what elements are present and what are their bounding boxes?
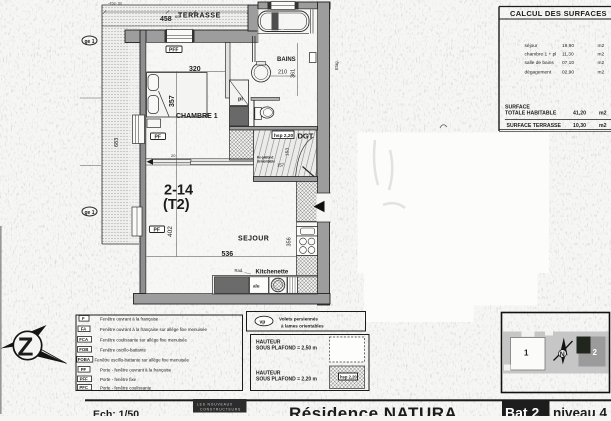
svg-text:FOBA: FOBA <box>78 357 90 362</box>
svg-text:Fenêtre oscillo-battante: Fenêtre oscillo-battante <box>100 348 146 353</box>
svg-text:ge 1: ge 1 <box>85 210 95 216</box>
svg-text:210: 210 <box>278 70 287 76</box>
svg-text:niveau 4: niveau 4 <box>553 406 608 417</box>
svg-text:m2: m2 <box>599 123 607 129</box>
svg-text:41,20: 41,20 <box>573 111 586 117</box>
svg-text:m2: m2 <box>598 70 605 76</box>
svg-text:démontable: démontable <box>257 160 275 164</box>
svg-text:356: 356 <box>287 237 293 246</box>
svg-text:Rad.: Rad. <box>235 268 244 273</box>
svg-text:FA: FA <box>81 327 87 332</box>
svg-text:19,90: 19,90 <box>562 43 574 49</box>
svg-text:Fenêtre oscillo-battante sur a: Fenêtre oscillo-battante sur allège fixe… <box>95 358 190 363</box>
svg-text:02,90: 02,90 <box>562 70 574 76</box>
svg-text:(T2): (T2) <box>163 197 190 213</box>
svg-text:2: 2 <box>593 348 598 357</box>
svg-text:07,10: 07,10 <box>562 60 574 66</box>
svg-text:PF: PF <box>155 134 161 140</box>
svg-text:320: 320 <box>189 66 201 73</box>
svg-text:PFF: PFF <box>169 47 178 53</box>
svg-text:F: F <box>82 316 85 321</box>
svg-text:hsp 2,20: hsp 2,20 <box>340 375 357 380</box>
svg-text:séjour: séjour <box>525 43 538 49</box>
svg-text:683: 683 <box>114 138 120 147</box>
svg-text:CHAMBRE 1: CHAMBRE 1 <box>176 113 218 120</box>
svg-text:PFF: PFF <box>80 377 88 382</box>
svg-text:PF: PF <box>81 367 87 372</box>
svg-text:PFC: PFC <box>79 385 88 390</box>
svg-text:PF: PF <box>154 227 160 233</box>
svg-text:Porte - fenêtre fixe: Porte - fenêtre fixe <box>100 377 137 382</box>
svg-text:458: 458 <box>160 16 172 23</box>
svg-text:TOTALE HABITABLE: TOTALE HABITABLE <box>505 111 557 117</box>
svg-text:Kitchenette: Kitchenette <box>256 270 289 276</box>
svg-text:alu: alu <box>253 284 260 289</box>
svg-text:Porte - fenêtre ouvrant à la f: Porte - fenêtre ouvrant à la française <box>100 368 172 373</box>
svg-text:Bat 2: Bat 2 <box>505 405 539 417</box>
svg-text:Porte - fenêtre coulissante: Porte - fenêtre coulissante <box>100 386 152 391</box>
svg-text:157: 157 <box>277 163 285 168</box>
svg-text:LES NOUVEAUX: LES NOUVEAUX <box>197 403 233 407</box>
svg-text:11,30: 11,30 <box>562 52 574 58</box>
svg-text:1: 1 <box>524 349 529 358</box>
svg-text:DGT: DGT <box>298 132 314 141</box>
svg-text:170x70: 170x70 <box>280 17 285 31</box>
svg-text:-458- 60: -458- 60 <box>108 2 122 6</box>
svg-text:SEJOUR: SEJOUR <box>238 236 269 243</box>
svg-text:CALCUL DES SURFACES: CALCUL DES SURFACES <box>510 9 607 18</box>
svg-text:20: 20 <box>171 153 176 158</box>
svg-text:m2: m2 <box>598 52 605 58</box>
svg-text:salle de bains: salle de bains <box>525 60 555 66</box>
svg-text:pl: pl <box>238 97 243 103</box>
svg-text:SURFACE TERRASSE: SURFACE TERRASSE <box>507 123 562 129</box>
svg-text:TERRASSE: TERRASSE <box>178 13 221 20</box>
svg-text:Résidence NATURA: Résidence NATURA <box>289 404 457 416</box>
svg-text:361: 361 <box>291 69 297 78</box>
svg-text:hsp 2,20: hsp 2,20 <box>274 133 294 139</box>
svg-text:Fenêtre coulissante sur allège: Fenêtre coulissante sur allège fixe menu… <box>100 338 187 343</box>
svg-text:ge 1: ge 1 <box>85 39 95 45</box>
svg-text:10,30: 10,30 <box>573 123 586 129</box>
svg-text:chambre 1 + pl: chambre 1 + pl <box>525 52 557 58</box>
svg-text:SOUS PLAFOND = 2,20 m: SOUS PLAFOND = 2,20 m <box>256 377 318 383</box>
svg-text:m2: m2 <box>599 111 607 117</box>
svg-text:dégagement: dégagement <box>525 70 552 76</box>
svg-text:N: N <box>560 352 565 359</box>
svg-text:402: 402 <box>167 226 174 237</box>
svg-text:m2: m2 <box>598 60 605 66</box>
svg-text:Z: Z <box>18 332 34 362</box>
svg-text:357: 357 <box>169 95 176 107</box>
svg-text:Fenêtre ouvrant à la française: Fenêtre ouvrant à la française sur allèg… <box>100 327 207 332</box>
svg-text:Fenêtre ouvrant à la française: Fenêtre ouvrant à la française <box>100 316 159 321</box>
svg-text:536: 536 <box>222 251 234 258</box>
svg-text:SOUS PLAFOND = 2,50 m: SOUS PLAFOND = 2,50 m <box>256 346 318 352</box>
svg-text:153: 153 <box>285 148 291 156</box>
svg-text:FOB: FOB <box>79 347 88 352</box>
svg-text:Ech: 1/50: Ech: 1/50 <box>93 409 139 417</box>
svg-text:Etag.: Etag. <box>334 60 339 70</box>
svg-text:FCA: FCA <box>79 337 88 342</box>
svg-text:à lames orientables: à lames orientables <box>281 324 324 329</box>
svg-text:Volets persiennés: Volets persiennés <box>279 317 318 322</box>
svg-text:BAINS: BAINS <box>277 57 296 63</box>
svg-text:vp: vp <box>260 319 266 325</box>
svg-text:m2: m2 <box>598 43 605 49</box>
svg-text:CONSTRUCTEURS: CONSTRUCTEURS <box>200 408 241 412</box>
